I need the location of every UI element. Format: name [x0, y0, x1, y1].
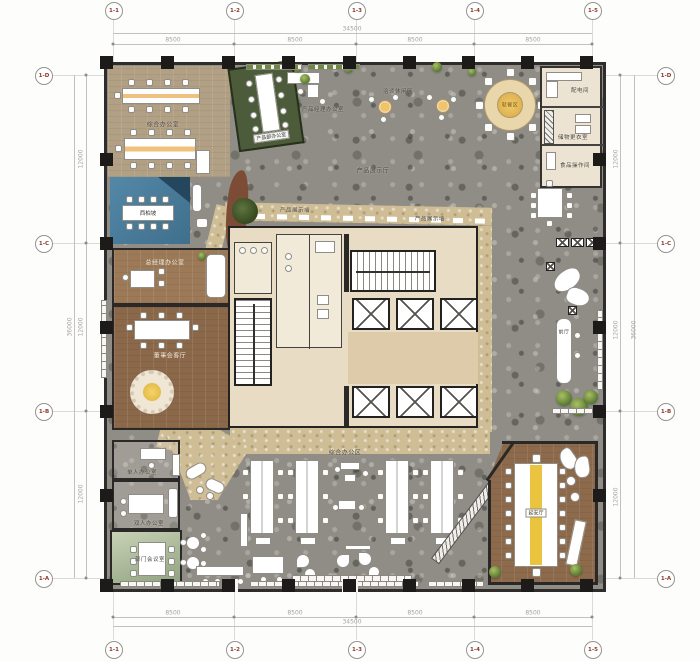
window-band	[101, 300, 107, 378]
room-general-office: 综合办公室	[108, 66, 230, 177]
tree	[232, 198, 258, 224]
dim-label: 12000	[613, 149, 620, 168]
dim-label: 8500	[287, 37, 302, 44]
dim-line	[86, 75, 87, 578]
grid-bubble: 1-C	[35, 235, 53, 253]
dim-tick	[473, 43, 476, 46]
grid-bubble: 1-1	[105, 2, 123, 20]
dim-tick	[233, 616, 236, 619]
dim-tick	[473, 616, 476, 619]
leisure-area: 洽谈休闲区	[360, 84, 470, 134]
window-band	[250, 581, 420, 587]
dim-label: 8500	[165, 610, 180, 617]
locker-shelf	[544, 110, 554, 144]
stair-left	[234, 298, 272, 386]
meeting-table	[134, 320, 190, 340]
dim-label: 34500	[342, 619, 361, 626]
grid-bubble: 1-A	[35, 570, 53, 588]
room-label: 综合办公区	[329, 448, 362, 457]
floor-plan: 8500 8500 8500 8500 34500 8500 8500 8500…	[0, 0, 700, 661]
grid-bubble: 1-3	[348, 641, 366, 659]
dim-tick	[619, 242, 622, 245]
desk-cluster	[385, 460, 409, 534]
room-double-office: 双人办公室	[112, 480, 180, 530]
desk-cluster	[430, 460, 454, 534]
standing-table	[240, 513, 248, 547]
room-label: 配电间	[571, 86, 589, 94]
sink-counter	[546, 152, 556, 170]
dim-label: 36000	[631, 320, 638, 339]
core	[228, 226, 478, 428]
room-yanan-hall: 延安厅	[470, 430, 606, 590]
room-label: 就餐区	[502, 102, 519, 109]
grid-bubble: 1-5	[584, 2, 602, 20]
dim-tick	[112, 616, 115, 619]
dim-label: 8500	[407, 37, 422, 44]
core-utility-rooms	[276, 234, 342, 348]
window-band	[428, 581, 484, 587]
sofa	[192, 184, 202, 212]
dim-tick	[591, 616, 594, 619]
dim-line	[113, 33, 592, 34]
pouf	[206, 492, 214, 500]
shrub	[468, 68, 476, 76]
shrub	[300, 74, 310, 84]
desk-cluster	[124, 138, 196, 160]
dim-line	[74, 75, 75, 578]
dim-line	[113, 44, 592, 45]
dim-tick	[85, 577, 88, 580]
tea-area	[182, 530, 248, 585]
dim-label: 8500	[525, 610, 540, 617]
bar-counter	[196, 566, 244, 576]
dim-label: 12000	[613, 487, 620, 506]
grid-bubble: 1-5	[584, 641, 602, 659]
elevator-shaft	[396, 298, 434, 330]
elevator-shaft	[440, 298, 478, 330]
dim-line	[620, 75, 621, 578]
grid-bubble: 1-1	[105, 641, 123, 659]
open-office: 综合办公区	[240, 430, 490, 590]
dim-tick	[233, 43, 236, 46]
room-gm-office: 总经理办公室	[112, 248, 230, 305]
room-label: 储物更衣室	[558, 133, 588, 141]
dim-label: 12000	[78, 317, 85, 336]
room-label: 前厅	[558, 329, 569, 336]
dim-line	[113, 626, 592, 627]
counter	[546, 72, 582, 81]
bench	[345, 545, 371, 550]
grid-bubble: 1-B	[657, 403, 675, 421]
desk-cluster	[122, 88, 200, 104]
round-table	[436, 99, 450, 113]
dim-label: 8500	[165, 37, 180, 44]
grid-bubble: 1-2	[226, 641, 244, 659]
room-label: 董事会客厅	[154, 351, 187, 360]
grid-bubble: 1-2	[226, 2, 244, 20]
room-label: 食品操作间	[560, 161, 590, 169]
pm-desk-area: 产品经理办公室	[285, 70, 349, 116]
dim-label: 8500	[407, 610, 422, 617]
round-table	[378, 100, 392, 114]
grid-bubble: 1-D	[35, 67, 53, 85]
desk-cluster	[250, 460, 274, 534]
dim-label: 8500	[525, 37, 540, 44]
room-label: 双人办公室	[134, 519, 164, 527]
wc-room	[234, 242, 272, 294]
room-label: 洽谈休闲区	[383, 87, 413, 95]
dim-label: 12000	[613, 320, 620, 339]
pouf	[196, 486, 204, 494]
desk-cluster	[295, 460, 319, 534]
room-label: 产品部办公室	[253, 130, 290, 144]
dim-tick	[85, 242, 88, 245]
room-label: 产品展示墙	[280, 205, 310, 214]
side-dining-table	[530, 180, 600, 228]
dim-tick	[85, 410, 88, 413]
grid-bubble: 1-D	[657, 67, 675, 85]
dim-tick	[355, 43, 358, 46]
room-label: 产品展示厅	[357, 166, 390, 175]
armchair	[196, 218, 208, 228]
grid-bubble: 1-3	[348, 2, 366, 20]
room-label: 单人办公室	[127, 468, 157, 476]
room-label: 产品展示墙	[415, 214, 445, 223]
pod-chair	[296, 554, 310, 568]
grid-bubble: 1-C	[657, 235, 675, 253]
lounge-sofa	[183, 460, 208, 481]
room-label: 部门会议室	[135, 555, 165, 563]
cabinet	[196, 150, 210, 174]
room-label: 产品经理办公室	[302, 105, 344, 113]
meeting-table: 西柏坡	[122, 205, 174, 221]
round-sofa-center	[143, 383, 161, 401]
dim-tick	[112, 43, 115, 46]
room-label: 综合办公室	[147, 120, 180, 129]
shrub	[432, 62, 442, 72]
pod-chair	[336, 554, 350, 568]
dim-tick	[619, 410, 622, 413]
room-dept-meeting: 部门会议室	[110, 530, 182, 585]
dim-label: 36000	[67, 317, 74, 336]
elevator-shaft	[352, 386, 390, 418]
dim-label: 12000	[78, 484, 85, 503]
display-wall-band-right	[478, 226, 492, 432]
grid-bubble: 1-B	[35, 403, 53, 421]
stair-top	[350, 250, 436, 292]
dim-label: 34500	[342, 26, 361, 33]
dim-label: 8500	[287, 610, 302, 617]
dim-tick	[85, 74, 88, 77]
elevator-lobby	[348, 332, 478, 384]
dim-label: 12000	[78, 149, 85, 168]
elevator-shaft	[440, 386, 478, 418]
room-label: 延安厅	[525, 509, 546, 518]
dim-tick	[619, 577, 622, 580]
room-label: 总经理办公室	[145, 258, 184, 267]
room-board-lounge: 董事会客厅	[112, 305, 230, 430]
cabinet	[172, 454, 180, 476]
desk	[130, 270, 155, 288]
grid-bubble: 1-A	[657, 570, 675, 588]
dim-tick	[619, 74, 622, 77]
room-single-office: 单人办公室	[112, 440, 180, 480]
grid-bubble: 1-4	[466, 2, 484, 20]
pod-chair	[358, 552, 372, 566]
sofa	[168, 488, 178, 518]
sofa	[206, 254, 226, 298]
swivel-chair	[570, 492, 580, 502]
elevator-shaft	[352, 298, 390, 330]
counter	[546, 81, 558, 98]
elevator-shaft	[396, 386, 434, 418]
grid-bubble: 1-4	[466, 641, 484, 659]
room-xibaipo: 西柏坡	[110, 177, 190, 244]
service-block: 配电间 储物更衣室 食品操作间	[540, 66, 602, 188]
side-table	[546, 262, 555, 271]
side-table	[568, 306, 577, 315]
dim-tick	[591, 43, 594, 46]
